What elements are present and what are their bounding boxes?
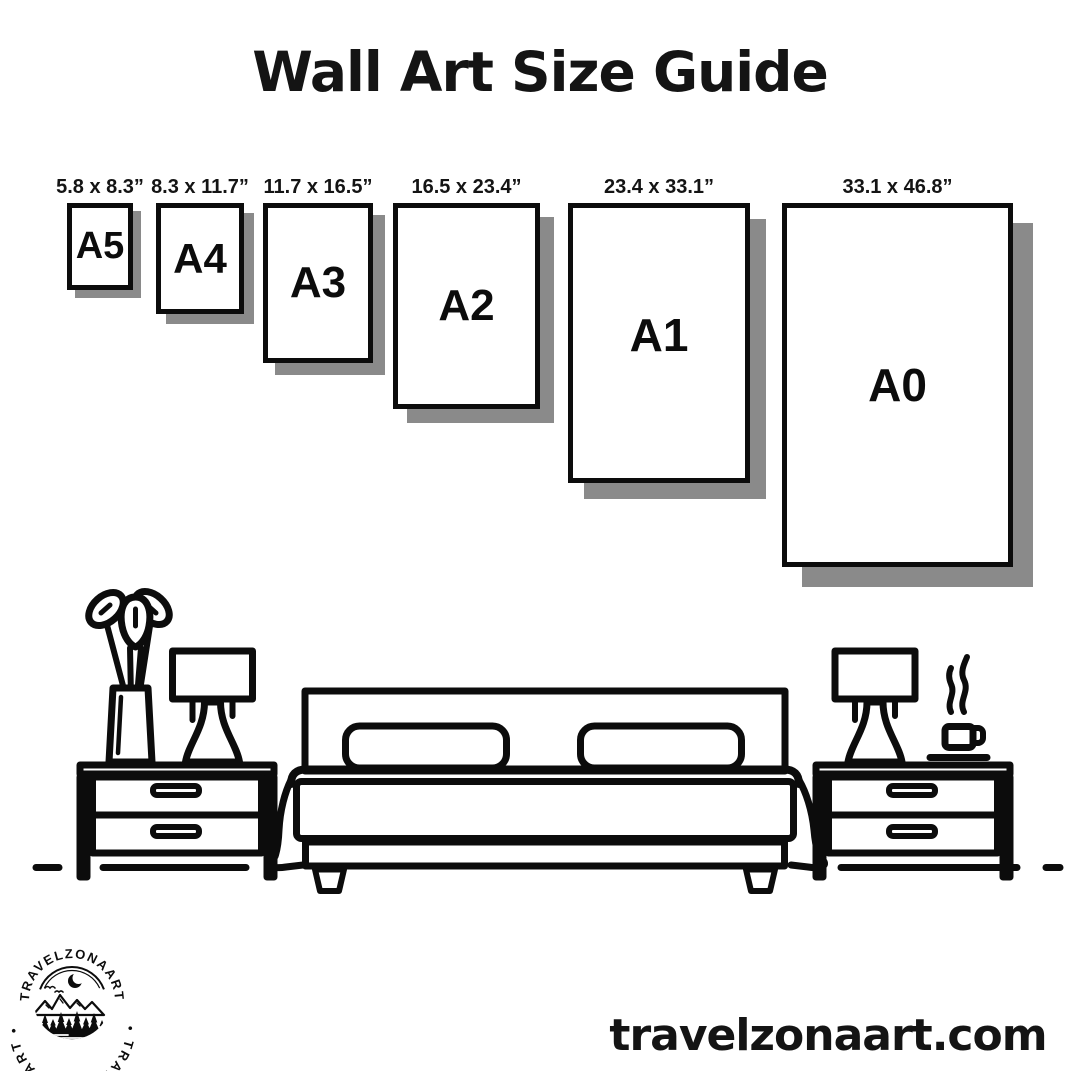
size-label: A0 <box>868 358 927 412</box>
cup-body <box>945 727 973 748</box>
size-dimensions-label: 11.7 x 16.5” <box>264 176 373 198</box>
lake-icon <box>32 1032 112 1044</box>
double-bed <box>269 691 824 891</box>
lamp-shade <box>835 651 915 699</box>
birds-icon <box>45 987 63 993</box>
size-label: A1 <box>630 308 689 362</box>
size-frame-a1: 23.4 x 33.1” A1 <box>568 176 750 483</box>
size-dimensions-label: 23.4 x 33.1” <box>604 176 714 198</box>
bed-leg <box>315 870 344 892</box>
logo-ring-text-top: • TRAVELZONAART • <box>2 931 127 1008</box>
table-lamp-right <box>835 651 915 762</box>
pillow <box>346 726 507 768</box>
crescent-moon-icon <box>68 972 85 988</box>
table-lamp-left <box>173 651 253 762</box>
lamp-shade <box>173 651 253 699</box>
size-frame-a0: 33.1 x 46.8” A0 <box>782 176 1013 567</box>
size-frame-a2: 16.5 x 23.4” A2 <box>393 176 540 409</box>
size-frame-a5: 5.8 x 8.3” A5 <box>67 176 133 290</box>
poster-frame: A4 <box>156 203 244 314</box>
poster-frame: A2 <box>393 203 540 409</box>
size-label: A2 <box>438 281 494 331</box>
steam-icon <box>949 668 952 712</box>
size-dimensions-label: 33.1 x 46.8” <box>842 176 952 198</box>
size-frame-a3: 11.7 x 16.5” A3 <box>263 176 373 363</box>
poster-frame: A5 <box>67 203 133 290</box>
size-dimensions-label: 5.8 x 8.3” <box>56 176 144 198</box>
mountains-icon <box>33 995 104 1015</box>
drawer-handle <box>153 827 199 836</box>
size-label: A3 <box>290 258 346 308</box>
size-label: A5 <box>76 225 125 268</box>
nightstand-left <box>80 765 274 877</box>
size-label: A4 <box>173 235 227 283</box>
svg-text:• TRAVELZONAART •: • TRAVELZONAART • <box>2 931 127 1008</box>
page-title: Wall Art Size Guide <box>0 40 1080 104</box>
nightstand-right <box>816 765 1010 877</box>
size-dimensions-label: 8.3 x 11.7” <box>151 176 249 198</box>
bed-leg <box>746 870 775 892</box>
flower-vase <box>82 585 175 762</box>
size-frame-a4: 8.3 x 11.7” A4 <box>156 176 244 314</box>
poster-frame: A0 <box>782 203 1013 567</box>
poster-frame: A3 <box>263 203 373 363</box>
steaming-cup <box>930 657 987 758</box>
drawer-handle <box>889 827 935 836</box>
size-dimensions-label: 16.5 x 23.4” <box>411 176 521 198</box>
bed-base <box>306 842 785 866</box>
wall-art-size-guide-infographic: Wall Art Size Guide 5.8 x 8.3” A5 8.3 x … <box>0 0 1080 1080</box>
pillow <box>581 726 742 768</box>
brand-logo: • TRAVELZONAART • • TRAVELZONAART • <box>2 931 142 1071</box>
drawer-handle <box>889 786 935 795</box>
logo-scene <box>32 967 112 1044</box>
vase-body <box>109 688 152 762</box>
bedroom-illustration <box>0 580 1080 900</box>
duvet <box>297 782 794 839</box>
poster-frame: A1 <box>568 203 750 483</box>
drawer-handle <box>153 786 199 795</box>
website-url: travelzonaart.com <box>578 1010 1078 1061</box>
steam-icon <box>962 657 967 712</box>
